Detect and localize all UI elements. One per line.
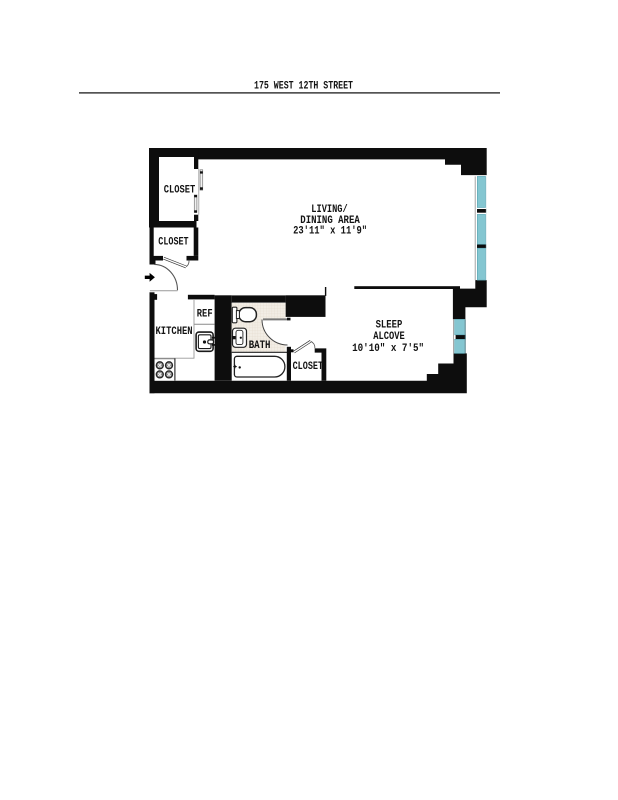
svg-text:CLOSET: CLOSET bbox=[164, 185, 196, 197]
svg-text:BATH: BATH bbox=[249, 340, 271, 352]
svg-text:CLOSET: CLOSET bbox=[293, 361, 324, 373]
svg-text:ALCOVE: ALCOVE bbox=[373, 331, 405, 343]
svg-text:23'11" x 11'9": 23'11" x 11'9" bbox=[293, 226, 367, 238]
svg-text:KITCHEN: KITCHEN bbox=[156, 326, 193, 338]
svg-text:175 WEST 12TH STREET: 175 WEST 12TH STREET bbox=[254, 81, 353, 93]
svg-text:10'10" x 7'5": 10'10" x 7'5" bbox=[352, 343, 424, 355]
svg-text:SLEEP: SLEEP bbox=[376, 320, 403, 332]
svg-text:CLOSET: CLOSET bbox=[158, 237, 189, 249]
svg-text:REF: REF bbox=[197, 309, 213, 321]
